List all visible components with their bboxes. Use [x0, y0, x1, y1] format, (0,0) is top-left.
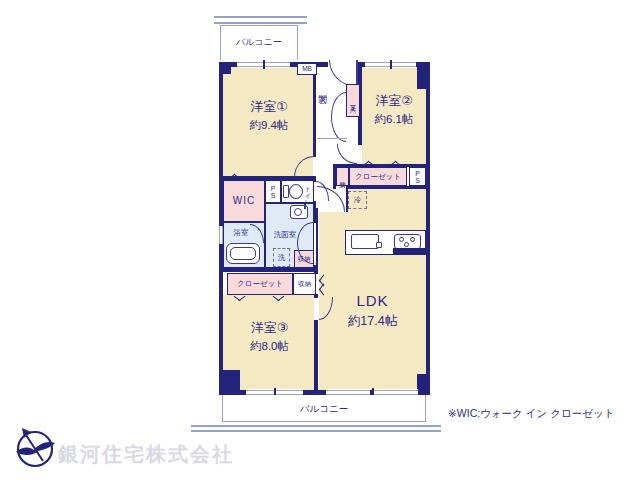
- entrance-door-leaf: [356, 60, 358, 87]
- wall-right: [426, 62, 430, 395]
- room2-label: 洋室② 約6.1帖: [362, 93, 426, 126]
- room1-size: 約9.4帖: [223, 119, 315, 133]
- wall-service-south: [223, 268, 316, 272]
- corner-bottom-right: [417, 374, 430, 395]
- balcony-bottom-rail-outer: [191, 430, 441, 432]
- basin-icon: [290, 204, 310, 220]
- window-room2-tick: [390, 60, 392, 69]
- toilet-icon: [282, 183, 304, 200]
- ldk-name: LDK: [319, 292, 426, 310]
- company-logo: [10, 421, 60, 473]
- closet-room2: クローゼット: [349, 167, 407, 186]
- balcony-bottom-label: バルコニー: [222, 403, 426, 414]
- kitchen-sink-icon: [351, 234, 382, 251]
- entrance-step-line: [317, 138, 347, 139]
- pipe-space-right: PS: [409, 167, 426, 186]
- room2-size: 約6.1帖: [362, 113, 426, 127]
- fridge-space: 冷: [348, 191, 367, 209]
- meter-box: MB: [297, 63, 317, 75]
- toilet-label: トイレ: [304, 181, 312, 203]
- window-room1-tick: [263, 60, 265, 69]
- room1-name: 洋室①: [223, 99, 315, 115]
- corner-bottom-left-pillar: [221, 370, 240, 392]
- washer-space: 洗: [273, 248, 290, 267]
- kitchen-wall-segment: [393, 248, 426, 255]
- storage-room3: 収納: [293, 273, 316, 295]
- company-name: 銀河住宅株式会社: [58, 441, 234, 468]
- room1-label: 洋室① 約9.4帖: [223, 99, 315, 132]
- storage3-fold-mark-2: [318, 283, 325, 296]
- shoe-cabinet: 下足入: [346, 84, 360, 117]
- room3-label: 洋室③ 約8.0帖: [223, 320, 316, 353]
- wic-room: WIC: [223, 180, 265, 222]
- balcony-top-label: バルコニー: [220, 37, 298, 48]
- bathtub-icon: [226, 243, 262, 266]
- corner-top-left: [219, 62, 231, 74]
- closet2-fold-mark-1: [362, 160, 375, 167]
- opening-room3-door: [314, 298, 318, 320]
- wic-fold-mark: [228, 173, 241, 180]
- floor-plan-canvas: バルコニー MB 玄関 下足入 洋室①: [0, 0, 640, 480]
- wall-closetrow-south: [346, 186, 426, 189]
- balcony-top-rail-outer: [214, 16, 307, 18]
- closet2-fold-mark-2: [389, 160, 402, 167]
- balcony-bottom-rail-inner: [191, 425, 441, 427]
- room3-size: 約8.0帖: [223, 340, 316, 354]
- corner-top-right: [417, 62, 430, 89]
- closet-room3: クローゼット: [227, 273, 293, 295]
- room3-name: 洋室③: [223, 320, 316, 336]
- wic-footnote: ※WIC:ウォーク イン クローゼット: [448, 407, 614, 421]
- room2-name: 洋室②: [362, 93, 426, 109]
- storage-room2: 収納: [336, 167, 349, 186]
- ldk-label: LDK 約17.4帖: [319, 292, 426, 329]
- pipe-space-mid: PS: [265, 180, 281, 203]
- ldk-size: 約17.4帖: [319, 314, 426, 329]
- entrance-label: 玄関: [318, 88, 328, 89]
- closet3-fold-mark-1: [233, 295, 246, 302]
- balcony-top-rail-inner: [214, 22, 307, 24]
- closet3-fold-mark-2: [272, 295, 285, 302]
